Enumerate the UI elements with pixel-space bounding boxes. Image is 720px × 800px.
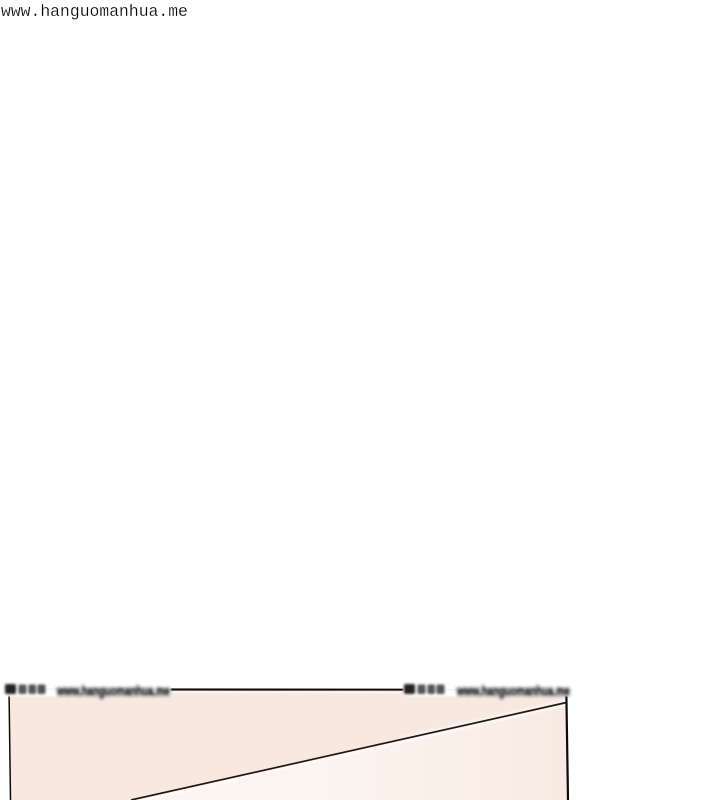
svg-text:www.hanguomanhua.me: www.hanguomanhua.me [456,683,570,699]
svg-text:www.hanguomanhua.me: www.hanguomanhua.me [56,683,170,699]
